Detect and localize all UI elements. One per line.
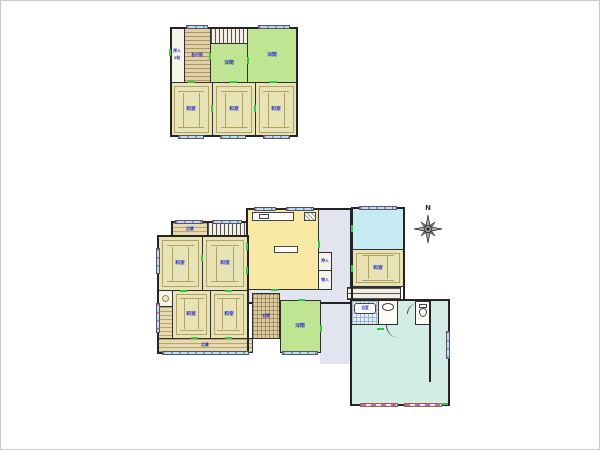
tokonoma-alcove bbox=[158, 290, 173, 307]
washbasin-icon bbox=[382, 303, 394, 311]
opening-mark bbox=[169, 49, 171, 56]
room-washitsu-right: 和室 bbox=[352, 249, 404, 287]
opening-mark bbox=[254, 105, 256, 112]
second-floor-plan: 押入 2帖 板の間 洋間 洋間 和室 和室 和室 bbox=[170, 27, 298, 137]
opening-mark bbox=[441, 403, 448, 405]
kitchen-island-counter bbox=[274, 246, 298, 253]
corridor bbox=[320, 302, 351, 364]
room-genkan: 玄関 bbox=[252, 293, 280, 339]
room-label: 洋間 bbox=[268, 52, 278, 58]
tokonoma-ornament bbox=[162, 295, 169, 302]
room-label: 板の間 bbox=[192, 53, 203, 57]
opening-mark bbox=[351, 265, 353, 272]
room-itanoma-2f: 板の間 bbox=[184, 27, 211, 83]
opening-mark bbox=[318, 241, 320, 248]
room-washitsu-2f-1: 和室 bbox=[170, 82, 213, 137]
window bbox=[282, 351, 318, 355]
window bbox=[286, 207, 314, 211]
window bbox=[220, 135, 246, 139]
compass-icon: N bbox=[412, 202, 444, 248]
window bbox=[446, 331, 450, 359]
opening-mark bbox=[191, 337, 198, 339]
opening-mark bbox=[247, 57, 249, 64]
closet-side-strip bbox=[158, 306, 173, 339]
stairs-1f-front bbox=[207, 222, 248, 237]
room-label: 広縁 bbox=[202, 343, 209, 347]
kitchen-stove bbox=[304, 212, 316, 221]
opening-mark bbox=[225, 290, 232, 292]
opening-mark bbox=[377, 328, 384, 330]
room-washitsu-se: 和室 bbox=[210, 290, 248, 339]
opening-mark bbox=[201, 255, 203, 262]
opening-mark bbox=[180, 290, 187, 292]
garage-door bbox=[360, 403, 398, 407]
window bbox=[186, 25, 208, 29]
opening-mark bbox=[211, 105, 213, 112]
room-label: 押入 bbox=[321, 259, 328, 263]
window bbox=[263, 135, 290, 139]
room-washitsu-sw: 和室 bbox=[172, 290, 211, 339]
opening-mark bbox=[298, 299, 305, 301]
opening-mark bbox=[351, 225, 353, 232]
window bbox=[212, 220, 242, 224]
garage-door bbox=[404, 403, 442, 407]
interior-wall bbox=[429, 302, 431, 382]
room-label: 和室 bbox=[176, 261, 186, 267]
opening-mark bbox=[246, 267, 248, 274]
room-label: 洋間 bbox=[224, 60, 234, 66]
window bbox=[258, 25, 290, 29]
floor-plan-page: 押入 2帖 板の間 洋間 洋間 和室 和室 和室 bbox=[0, 0, 600, 450]
closet-monoire-1f: 物入 bbox=[318, 270, 332, 290]
window bbox=[359, 206, 397, 210]
room-label: 広縁 bbox=[186, 227, 193, 231]
room-washitsu-ne: 和室 bbox=[202, 236, 248, 291]
opening-mark bbox=[188, 81, 195, 83]
stairs-2f bbox=[210, 27, 248, 44]
compass-north-label: N bbox=[425, 204, 431, 212]
room-label: 洋間 bbox=[296, 324, 306, 330]
room-hiroen-top: 広縁 bbox=[172, 222, 208, 237]
room-washitsu-nw: 和室 bbox=[158, 236, 203, 291]
room-youma-large-2f: 洋間 bbox=[247, 27, 298, 83]
room-label: 和室 bbox=[220, 261, 230, 267]
opening-mark bbox=[270, 81, 277, 83]
room-label: 浴室 bbox=[361, 306, 368, 310]
opening-mark bbox=[271, 289, 278, 291]
room-washitsu-2f-2: 和室 bbox=[212, 82, 256, 137]
room-youma-1f: 洋間 bbox=[280, 300, 321, 353]
room-storeroom bbox=[352, 208, 404, 250]
opening-mark bbox=[320, 325, 322, 332]
room-label: 玄関 bbox=[262, 314, 269, 318]
window bbox=[254, 207, 276, 211]
room-closet-2f: 押入 2帖 bbox=[170, 27, 185, 83]
room-label: 和室 bbox=[229, 107, 239, 113]
room-label: 押入 bbox=[174, 49, 181, 53]
window bbox=[156, 303, 160, 333]
window bbox=[178, 135, 204, 139]
room-youma-small-2f: 洋間 bbox=[210, 43, 248, 83]
closet-oshiire-1f: 押入 bbox=[318, 252, 332, 271]
opening-mark bbox=[246, 243, 248, 250]
opening-mark bbox=[209, 53, 211, 60]
room-washitsu-2f-3: 和室 bbox=[255, 82, 298, 137]
opening-mark bbox=[230, 81, 237, 83]
room-label: 和室 bbox=[373, 265, 383, 271]
first-floor-plan: 広縁 キッチン 押入 物入 和室 和室 和室 bbox=[155, 207, 455, 412]
window bbox=[175, 220, 203, 224]
window bbox=[156, 248, 160, 274]
room-label: 和室 bbox=[187, 312, 197, 318]
opening-mark bbox=[225, 337, 232, 339]
room-label: 和室 bbox=[224, 312, 234, 318]
room-label: 2帖 bbox=[174, 56, 180, 60]
kitchen-sink bbox=[259, 214, 269, 219]
window bbox=[162, 351, 249, 355]
bathtub-icon: 浴室 bbox=[354, 303, 376, 314]
room-label: 和室 bbox=[187, 107, 197, 113]
room-label: 和室 bbox=[272, 107, 282, 113]
room-label: 物入 bbox=[321, 278, 328, 282]
